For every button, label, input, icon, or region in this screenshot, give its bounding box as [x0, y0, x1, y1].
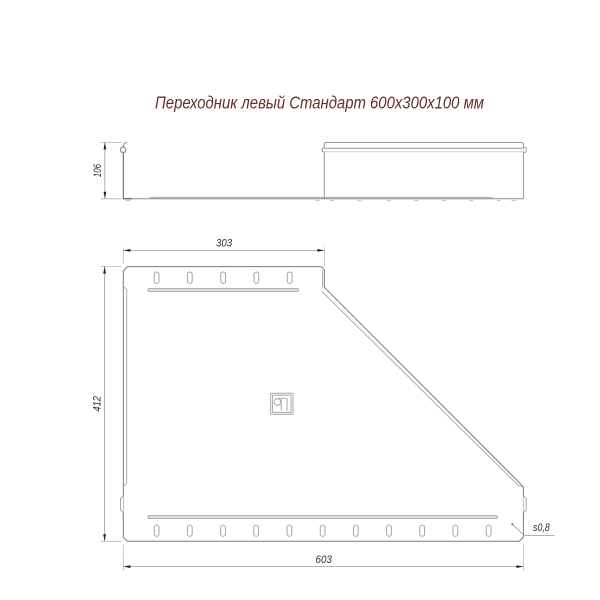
- svg-text:303: 303: [216, 237, 232, 249]
- svg-text:603: 603: [316, 554, 332, 566]
- svg-text:Переходник левый Стандарт 600х: Переходник левый Стандарт 600х300х100 мм: [155, 92, 484, 112]
- svg-text:106: 106: [92, 164, 104, 177]
- svg-text:s0,8: s0,8: [533, 522, 550, 534]
- svg-text:412: 412: [92, 396, 104, 412]
